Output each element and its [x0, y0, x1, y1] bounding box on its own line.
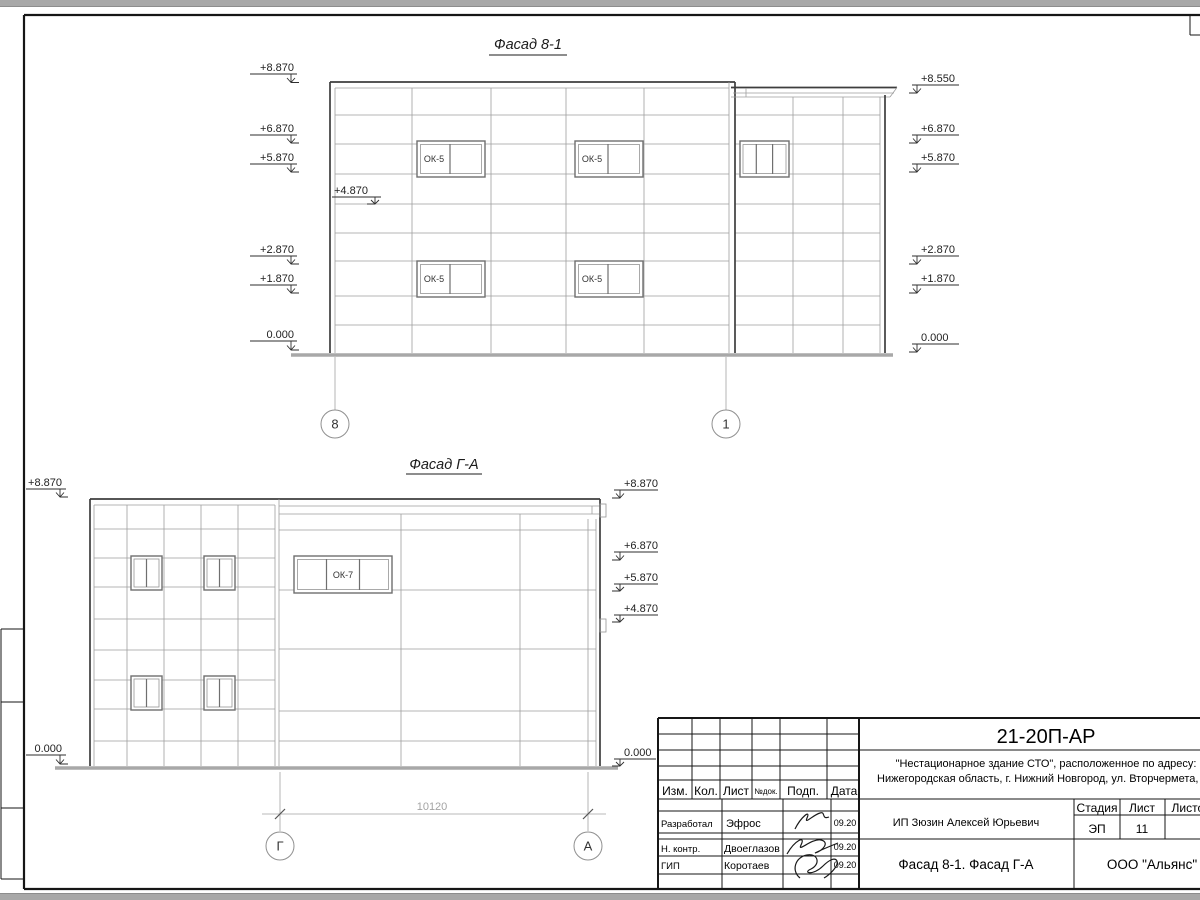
- svg-text:+5.870: +5.870: [260, 152, 294, 164]
- col-podp: Подп.: [787, 784, 819, 798]
- svg-text:+2.870: +2.870: [921, 244, 955, 256]
- name-dvoeglazov: Двоеглазов: [724, 843, 780, 855]
- svg-text:+5.870: +5.870: [624, 572, 658, 584]
- svg-text:+8.870: +8.870: [624, 478, 658, 490]
- axis-label: 8: [331, 417, 338, 432]
- project-name-line2: Нижегородская область, г. Нижний Новгоро…: [877, 773, 1200, 785]
- window-ok5-upper-mid: ОК-5: [575, 141, 643, 177]
- svg-text:+2.870: +2.870: [260, 244, 294, 256]
- svg-text:+1.870: +1.870: [260, 273, 294, 285]
- col-kol: Кол.: [694, 784, 718, 798]
- sheet-value: 11: [1136, 822, 1149, 836]
- svg-text:+6.870: +6.870: [260, 123, 294, 135]
- svg-text:+6.870: +6.870: [921, 123, 955, 135]
- sheets-label: Листов: [1172, 801, 1200, 815]
- window-small-upper-2: [204, 556, 235, 590]
- role-nkontr: Н. контр.: [661, 844, 700, 855]
- window-three-pane: [740, 141, 789, 177]
- dimension-value: 10120: [417, 801, 448, 813]
- axis-label: Г: [276, 839, 283, 854]
- facade-8-1-title: Фасад 8-1: [494, 37, 562, 53]
- svg-text:+4.870: +4.870: [334, 185, 368, 197]
- col-data: Дата: [831, 784, 858, 798]
- axis-label: 1: [722, 417, 729, 432]
- svg-text:+5.870: +5.870: [921, 152, 955, 164]
- sheet-label: Лист: [1129, 801, 1156, 815]
- axis-label: А: [584, 839, 593, 854]
- stage-label: Стадия: [1077, 801, 1118, 815]
- date-razrabotal: 09.20: [834, 818, 857, 828]
- window-ok5-upper-left: ОК-5: [417, 141, 485, 177]
- window-label: ОК-5: [424, 154, 444, 164]
- svg-text:0.000: 0.000: [34, 743, 62, 755]
- window-small-upper-1: [131, 556, 162, 590]
- svg-text:+1.870: +1.870: [921, 273, 955, 285]
- role-razrabotal: Разработал: [661, 819, 713, 830]
- svg-text:0.000: 0.000: [266, 329, 294, 341]
- svg-text:0.000: 0.000: [921, 332, 949, 344]
- window-label: ОК-5: [582, 154, 602, 164]
- window-label: ОК-5: [424, 274, 444, 284]
- col-izm: Изм.: [662, 784, 688, 798]
- company-name: ООО "Альянс": [1107, 857, 1197, 872]
- drawing-sheet-viewport: Фасад 8-1: [0, 0, 1200, 900]
- project-name-line1: "Нестационарное здание СТО", расположенн…: [896, 758, 1197, 770]
- window-label: ОК-7: [333, 570, 353, 580]
- col-ndok: №док.: [754, 787, 777, 796]
- svg-text:+8.870: +8.870: [260, 62, 294, 74]
- svg-text:0.000: 0.000: [624, 747, 652, 759]
- window-ok5-lower-mid: ОК-5: [575, 261, 643, 297]
- window-ok7: ОК-7: [294, 556, 392, 593]
- stage-value: ЭП: [1088, 822, 1105, 836]
- svg-text:+6.870: +6.870: [624, 540, 658, 552]
- window-small-lower-1: [131, 676, 162, 710]
- window-label: ОК-5: [582, 274, 602, 284]
- name-efros: Эфрос: [726, 818, 761, 830]
- svg-text:+8.550: +8.550: [921, 73, 955, 85]
- document-code: 21-20П-АР: [997, 726, 1096, 748]
- name-korotaev: Коротаев: [724, 860, 770, 872]
- customer-name: ИП Зюзин Алексей Юрьевич: [893, 817, 1040, 829]
- role-gip: ГИП: [661, 861, 680, 872]
- drawing-sheet: Фасад 8-1: [0, 0, 1200, 900]
- drawing-title: Фасад 8-1. Фасад Г-А: [898, 857, 1033, 872]
- svg-text:+8.870: +8.870: [28, 477, 62, 489]
- facade-g-a-title: Фасад Г-А: [409, 457, 478, 473]
- svg-text:+4.870: +4.870: [624, 603, 658, 615]
- window-ok5-lower-left: ОК-5: [417, 261, 485, 297]
- col-list: Лист: [723, 784, 750, 798]
- window-small-lower-2: [204, 676, 235, 710]
